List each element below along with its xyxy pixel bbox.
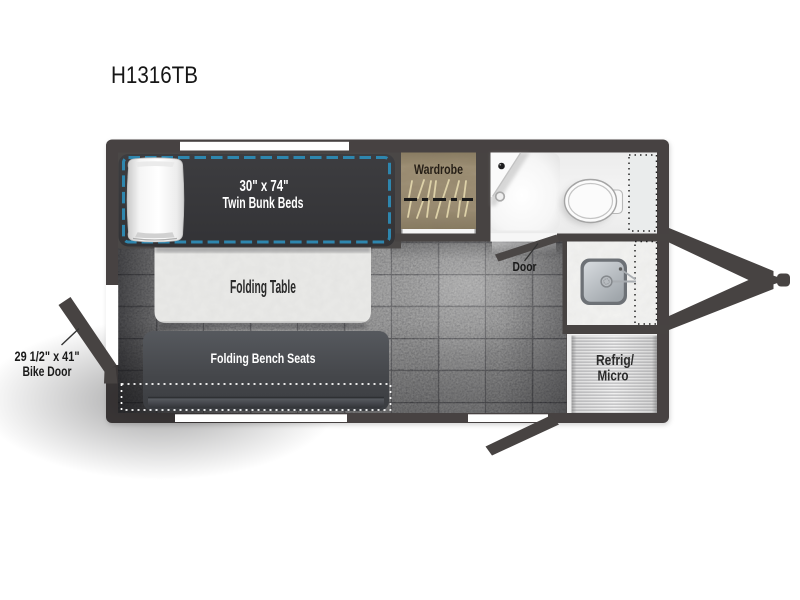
svg-text:Refrig/: Refrig/ bbox=[596, 352, 635, 369]
svg-text:Micro: Micro bbox=[598, 368, 629, 385]
svg-text:Bike Door: Bike Door bbox=[23, 363, 72, 379]
svg-text:Wardrobe: Wardrobe bbox=[414, 162, 463, 177]
svg-text:Folding Table: Folding Table bbox=[230, 277, 296, 297]
svg-text:30" x 74": 30" x 74" bbox=[240, 178, 289, 195]
svg-text:29 1/2" x 41": 29 1/2" x 41" bbox=[15, 348, 80, 364]
svg-text:H1316TB: H1316TB bbox=[111, 62, 198, 89]
svg-text:Twin Bunk Beds: Twin Bunk Beds bbox=[223, 195, 304, 212]
svg-text:Folding Bench Seats: Folding Bench Seats bbox=[211, 351, 316, 366]
svg-text:Door: Door bbox=[513, 259, 537, 274]
